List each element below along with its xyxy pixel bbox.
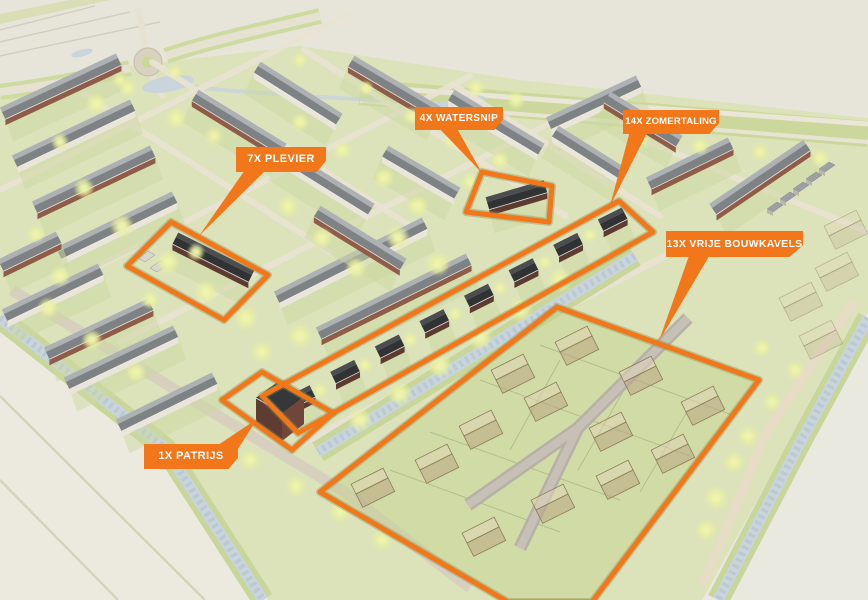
callout-plevier: 7X PLEVIER (236, 147, 326, 172)
callout-watersnip: 4x WATERSNIP (415, 107, 503, 130)
site-plan: 7X PLEVIER 4x WATERSNIP 14X ZOMERTALING … (0, 0, 868, 600)
callout-zomertaling: 14X ZOMERTALING (623, 110, 719, 134)
callout-patrijs: 1X PATRIJS (144, 444, 238, 469)
site-plan-rendering (0, 0, 868, 600)
callout-vrije-bouwkavels: 13X VRIJE BOUWKAVELS (666, 231, 803, 257)
